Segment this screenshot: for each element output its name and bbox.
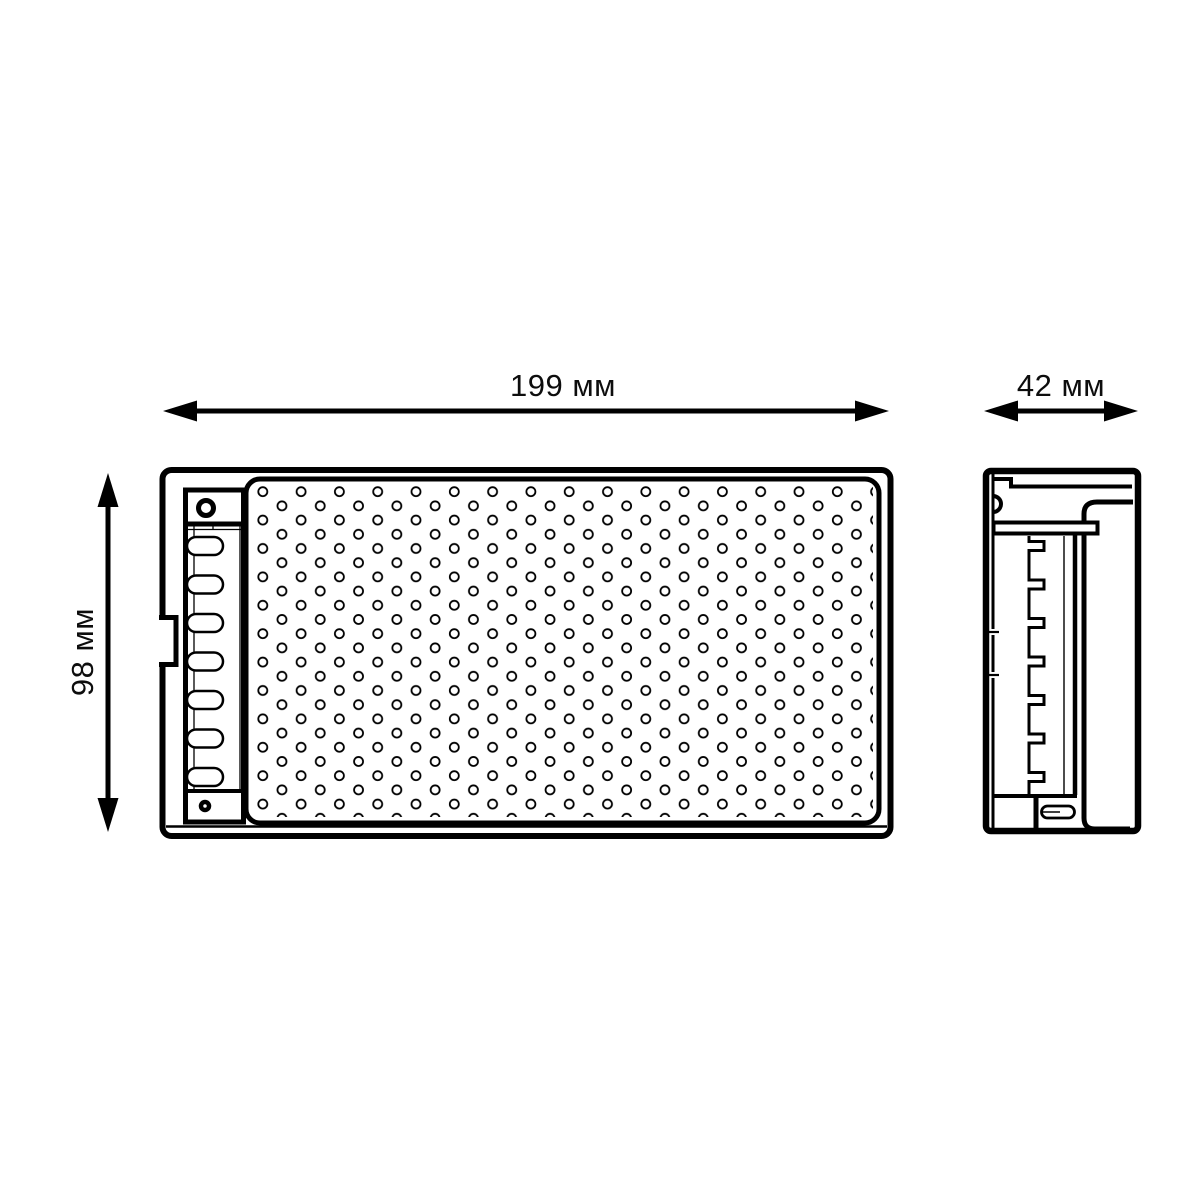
mounting-flange bbox=[994, 523, 1098, 534]
arrow-right-icon bbox=[855, 401, 889, 422]
arrow-right-icon bbox=[1104, 401, 1138, 422]
terminal-slot bbox=[187, 576, 223, 594]
terminal-slot bbox=[187, 691, 223, 709]
front-width-label: 199 мм bbox=[510, 368, 616, 403]
arrow-left-icon bbox=[163, 401, 197, 422]
terminal-slot bbox=[187, 730, 223, 748]
terminal-slot bbox=[187, 537, 223, 555]
front-width-dimension: 199 мм bbox=[163, 368, 889, 422]
side-depth-dimension: 42 мм bbox=[984, 368, 1138, 422]
drawing-svg: 199 мм 42 мм 98 мм bbox=[0, 0, 1200, 1200]
terminal-slot bbox=[187, 768, 223, 786]
terminal-slot bbox=[187, 653, 223, 671]
terminal-slot bbox=[187, 614, 223, 632]
side-depth-label: 42 мм bbox=[1017, 368, 1105, 403]
case-edge-notch bbox=[159, 618, 176, 665]
front-height-label: 98 мм bbox=[65, 608, 100, 696]
arrow-left-icon bbox=[984, 401, 1018, 422]
front-height-dimension: 98 мм bbox=[65, 473, 119, 832]
technical-drawing-canvas: 199 мм 42 мм 98 мм bbox=[0, 0, 1200, 1200]
arrow-down-icon bbox=[98, 798, 119, 832]
perforation-pattern bbox=[252, 484, 873, 817]
front-view bbox=[159, 470, 891, 836]
arrow-up-icon bbox=[98, 473, 119, 507]
side-view bbox=[986, 471, 1138, 831]
